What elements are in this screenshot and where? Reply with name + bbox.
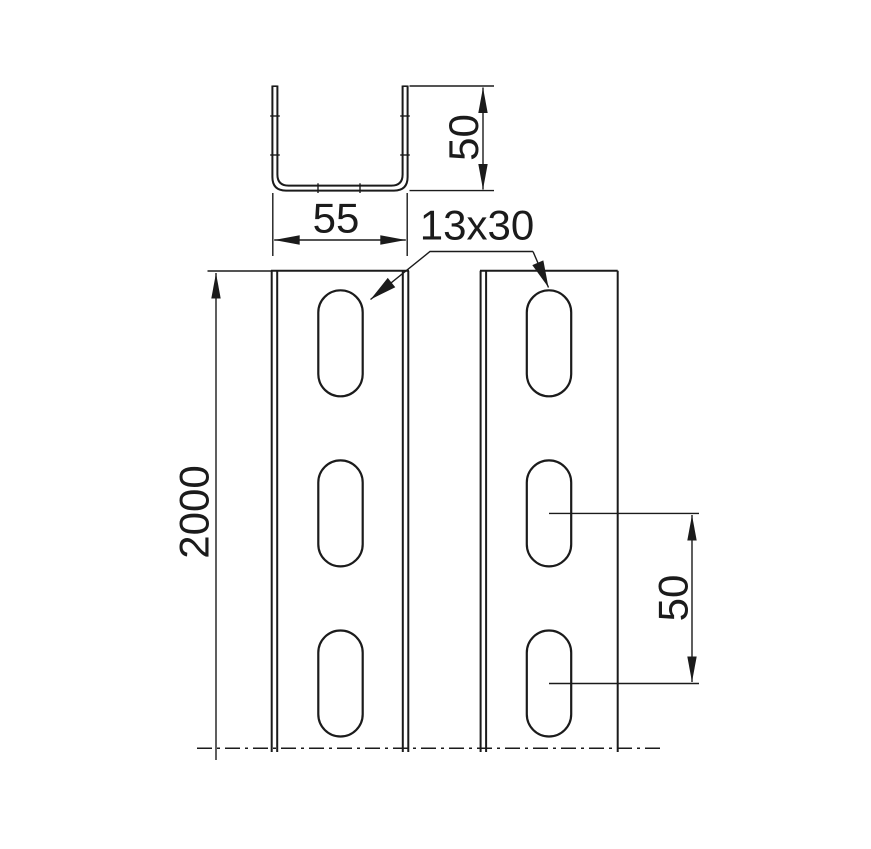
dimension-section-width: 55 xyxy=(273,193,407,256)
dimension-value-section-height: 50 xyxy=(440,114,487,161)
slot xyxy=(318,460,362,566)
dimension-profile-length: 2000 xyxy=(171,271,272,760)
dimension-value-section-width: 55 xyxy=(313,195,360,242)
front-view-left xyxy=(271,271,409,752)
slot xyxy=(527,290,571,396)
cross-section-outer-contour xyxy=(272,86,407,191)
slot-size-label: 13x30 xyxy=(420,202,534,249)
front-view-right xyxy=(480,271,618,752)
dimension-value-profile-length: 2000 xyxy=(171,465,218,558)
slot xyxy=(318,290,362,396)
technical-drawing-canvas: 50 55 13x30 2000 xyxy=(0,0,871,849)
drawing-sheet: 50 55 13x30 2000 xyxy=(0,0,871,849)
leader-line-left xyxy=(371,252,534,300)
slot-size-callout: 13x30 xyxy=(371,202,549,300)
dimension-section-height: 50 xyxy=(410,86,495,191)
dimension-value-slot-spacing: 50 xyxy=(650,575,697,622)
slot xyxy=(318,631,362,737)
leader-line-right xyxy=(533,252,549,288)
cross-section-view xyxy=(270,86,410,194)
cross-section-inner-contour xyxy=(277,86,402,186)
